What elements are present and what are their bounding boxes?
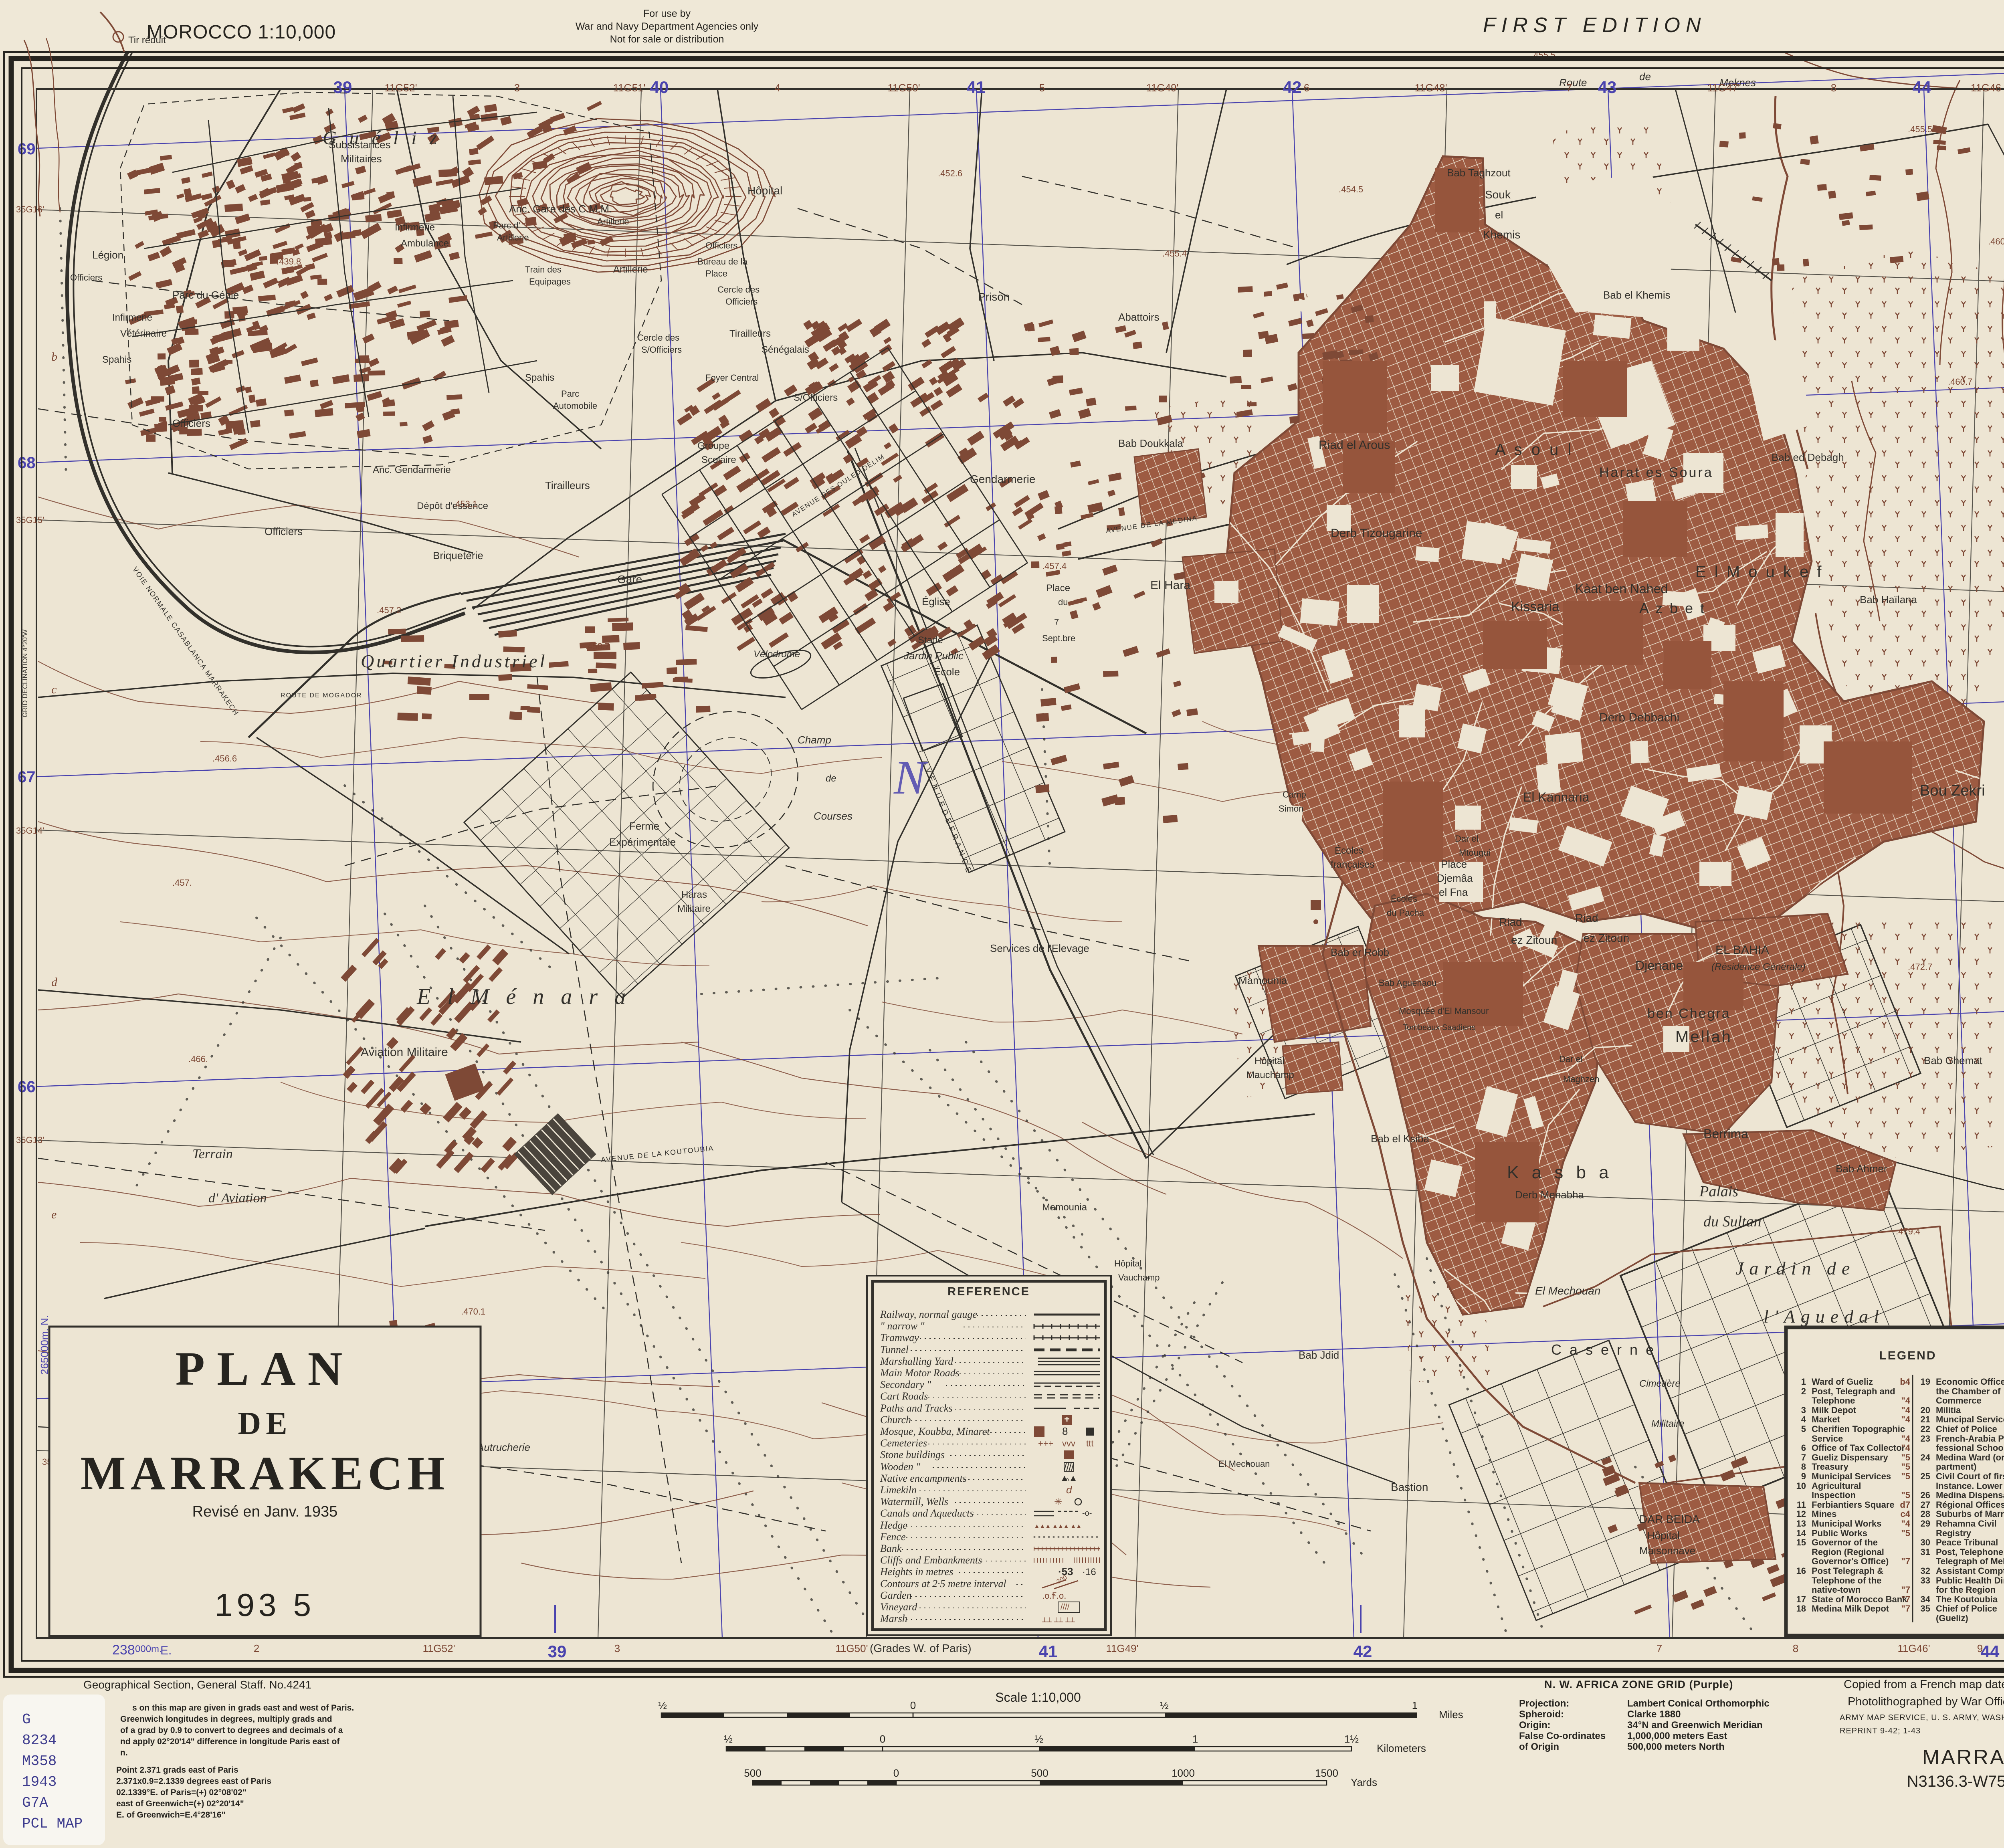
svg-text:Public Works: Public Works bbox=[1812, 1528, 1867, 1538]
svg-text:11G49': 11G49' bbox=[1106, 1642, 1138, 1654]
svg-text:Militaire: Militaire bbox=[1651, 1418, 1685, 1429]
svg-text:El Mechouan: El Mechouan bbox=[1218, 1459, 1270, 1469]
svg-text:Parc du Génie: Parc du Génie bbox=[172, 289, 239, 301]
svg-text:18: 18 bbox=[1796, 1604, 1806, 1614]
svg-text:⟂⟂ ⟂⟂ ⟂⟂: ⟂⟂ ⟂⟂ ⟂⟂ bbox=[1042, 1616, 1075, 1624]
svg-text:35: 35 bbox=[1921, 1604, 1930, 1614]
svg-text:11G50': 11G50' bbox=[835, 1642, 868, 1654]
svg-text:Tunnel: Tunnel bbox=[880, 1344, 909, 1355]
svg-text:Fence: Fence bbox=[880, 1531, 906, 1543]
svg-text:Marsh: Marsh bbox=[880, 1613, 907, 1624]
svg-text:.439.8: .439.8 bbox=[277, 256, 301, 267]
svg-text:EL BAHIA: EL BAHIA bbox=[1715, 943, 1769, 957]
svg-text:vvv: vvv bbox=[1062, 1438, 1075, 1448]
svg-text:24: 24 bbox=[1921, 1452, 1931, 1462]
svg-text:Bab Ahmer: Bab Ahmer bbox=[1836, 1163, 1887, 1175]
svg-text:Office of Tax Collector: Office of Tax Collector bbox=[1812, 1443, 1905, 1453]
svg-text:M358: M358 bbox=[22, 1753, 57, 1769]
svg-text:Bab Jdid: Bab Jdid bbox=[1299, 1349, 1339, 1361]
svg-text:Cherifien Topographic: Cherifien Topographic bbox=[1812, 1424, 1905, 1434]
svg-text:"4: "4 bbox=[1901, 1443, 1910, 1453]
svg-text:Officiers: Officiers bbox=[705, 240, 737, 250]
svg-text:Mamounia: Mamounia bbox=[1238, 974, 1287, 986]
svg-text:Haras: Haras bbox=[681, 889, 707, 900]
svg-text:ez Zitoun: ez Zitoun bbox=[1511, 934, 1557, 946]
svg-text:A s o u l: A s o u l bbox=[1495, 441, 1574, 458]
svg-text:✳: ✳ bbox=[1054, 1497, 1062, 1507]
svg-text:Bank: Bank bbox=[880, 1543, 902, 1554]
svg-text:-o-: -o- bbox=[1082, 1509, 1092, 1518]
svg-text:Anc. Gare des C.M.M.: Anc. Gare des C.M.M. bbox=[509, 203, 612, 215]
svg-text:.453.1: .453.1 bbox=[453, 499, 477, 509]
svg-text:du: du bbox=[1058, 597, 1068, 607]
svg-text:Registry: Registry bbox=[1936, 1528, 1972, 1538]
svg-text:Mauchamp: Mauchamp bbox=[1246, 1070, 1294, 1081]
svg-text:Chief of Police: Chief of Police bbox=[1936, 1604, 1997, 1614]
svg-text:1000: 1000 bbox=[1172, 1767, 1195, 1779]
svg-text:44: 44 bbox=[1981, 1642, 2000, 1661]
svg-text:Governor's Office): Governor's Office) bbox=[1812, 1556, 1889, 1566]
svg-text:east of Greenwich=(+) 02°20'14: east of Greenwich=(+) 02°20'14" bbox=[116, 1799, 244, 1808]
svg-text:Spahis: Spahis bbox=[102, 354, 131, 365]
svg-text:Militaires: Militaires bbox=[341, 153, 382, 165]
svg-text:1: 1 bbox=[1192, 1733, 1198, 1745]
svg-text:DE: DE bbox=[238, 1406, 292, 1441]
svg-text:Khemis: Khemis bbox=[1483, 228, 1520, 241]
svg-text:8: 8 bbox=[1793, 1642, 1798, 1654]
svg-text:Chief of Police: Chief of Police bbox=[1936, 1424, 1997, 1434]
svg-text:Greenwich longitudes in degree: Greenwich longitudes in degrees, multipl… bbox=[120, 1715, 332, 1724]
svg-text:41: 41 bbox=[967, 78, 986, 97]
svg-text:For use by: For use by bbox=[643, 8, 691, 19]
svg-text:.470.1: .470.1 bbox=[461, 1307, 485, 1317]
svg-text:34°N and Greenwich Meridian: 34°N and Greenwich Meridian bbox=[1627, 1720, 1763, 1731]
svg-text:19: 19 bbox=[1921, 1377, 1930, 1387]
svg-text:Bab Haïlana: Bab Haïlana bbox=[1860, 594, 1917, 606]
svg-text:Canals and Aqueducts: Canals and Aqueducts bbox=[880, 1507, 974, 1519]
svg-text:238: 238 bbox=[112, 1642, 135, 1658]
svg-text:PLAN: PLAN bbox=[176, 1342, 355, 1395]
svg-text:11G51': 11G51' bbox=[613, 82, 645, 94]
svg-text:66: 66 bbox=[18, 1078, 36, 1096]
svg-text:34: 34 bbox=[1921, 1594, 1931, 1604]
svg-text:35G15': 35G15' bbox=[16, 515, 44, 525]
svg-text:Ferme: Ferme bbox=[629, 820, 659, 832]
svg-text:REPRINT 9-42; 1-43: REPRINT 9-42; 1-43 bbox=[1840, 1727, 1921, 1735]
svg-text:"5: "5 bbox=[1901, 1462, 1910, 1472]
svg-text:0: 0 bbox=[880, 1733, 885, 1745]
svg-text:35G14': 35G14' bbox=[16, 826, 44, 836]
svg-text:17: 17 bbox=[1796, 1594, 1806, 1604]
svg-text:Bab Aguenaou: Bab Aguenaou bbox=[1379, 978, 1436, 988]
svg-text:S/Officiers: S/Officiers bbox=[794, 392, 838, 403]
svg-text:20: 20 bbox=[1921, 1405, 1930, 1415]
svg-text:Stone buildings: Stone buildings bbox=[880, 1449, 945, 1460]
svg-text:.466.: .466. bbox=[188, 1054, 208, 1064]
svg-text:Écoles: Écoles bbox=[1391, 894, 1417, 904]
svg-text:"4: "4 bbox=[1901, 1396, 1910, 1406]
svg-text:.457.: .457. bbox=[172, 878, 192, 888]
svg-text:ben Chegra: ben Chegra bbox=[1647, 1006, 1731, 1021]
svg-text:6: 6 bbox=[1801, 1443, 1806, 1453]
svg-text:½: ½ bbox=[1160, 1699, 1169, 1711]
svg-text:E. of Greenwich=E.4°28'16": E. of Greenwich=E.4°28'16" bbox=[116, 1810, 226, 1820]
svg-text:d' Aviation: d' Aviation bbox=[208, 1191, 267, 1206]
svg-text:Bab el Ksiba: Bab el Ksiba bbox=[1371, 1133, 1430, 1145]
svg-text:Kàat ben Nahed: Kàat ben Nahed bbox=[1575, 582, 1668, 596]
svg-text:2: 2 bbox=[1801, 1386, 1806, 1396]
svg-text:l'Aguedal: l'Aguedal bbox=[1764, 1306, 1885, 1327]
svg-text:of a grad by 0.9 to convert to: of a grad by 0.9 to convert to degrees a… bbox=[120, 1726, 343, 1735]
svg-text:Jardin de: Jardin de bbox=[1735, 1258, 1855, 1278]
svg-text:MARRAKECH: MARRAKECH bbox=[1922, 1746, 2004, 1769]
svg-text:7: 7 bbox=[1657, 1642, 1662, 1654]
svg-text:Derb Debbachi: Derb Debbachi bbox=[1599, 711, 1679, 724]
svg-text:Tirailleurs: Tirailleurs bbox=[729, 328, 771, 339]
svg-text:.458.7: .458.7 bbox=[585, 641, 610, 651]
svg-text:.454.5: .454.5 bbox=[1339, 184, 1363, 194]
svg-text:4: 4 bbox=[1801, 1414, 1806, 1424]
svg-text:40: 40 bbox=[650, 78, 669, 97]
svg-text:500: 500 bbox=[744, 1767, 761, 1779]
svg-text:Gueliz Dispensary: Gueliz Dispensary bbox=[1812, 1452, 1889, 1462]
svg-text:500: 500 bbox=[1031, 1767, 1048, 1779]
svg-text:02.1339°E. of Paris=(+) 02°08': 02.1339°E. of Paris=(+) 02°08'02" bbox=[116, 1788, 246, 1797]
svg-text:Terrain: Terrain bbox=[192, 1147, 233, 1161]
svg-text:Bureau de la: Bureau de la bbox=[697, 256, 748, 267]
svg-text:Municipal Services: Municipal Services bbox=[1812, 1471, 1891, 1481]
svg-text:.457.4: .457.4 bbox=[1042, 561, 1067, 571]
svg-text:Point 2.371 grads east of Pari: Point 2.371 grads east of Paris bbox=[116, 1765, 238, 1775]
svg-text:the Chamber of: the Chamber of bbox=[1936, 1386, 2001, 1396]
svg-text:"4: "4 bbox=[1901, 1405, 1910, 1415]
svg-text:Abattoirs: Abattoirs bbox=[1118, 311, 1160, 323]
svg-text:Route: Route bbox=[1559, 77, 1587, 89]
svg-text:Muncipal Services: Muncipal Services bbox=[1936, 1414, 2004, 1424]
svg-text:35G13': 35G13' bbox=[16, 1135, 44, 1145]
svg-text:1,000,000 meters East: 1,000,000 meters East bbox=[1627, 1731, 1727, 1741]
svg-text:Berrima: Berrima bbox=[1703, 1127, 1748, 1141]
svg-text:44: 44 bbox=[1913, 78, 1931, 97]
svg-text:Cart Roads: Cart Roads bbox=[880, 1390, 928, 1402]
svg-text:Watermill, Wells: Watermill, Wells bbox=[880, 1496, 948, 1507]
svg-text:Medina Dispensary: Medina Dispensary bbox=[1936, 1490, 2004, 1500]
svg-text:G7A: G7A bbox=[22, 1795, 48, 1811]
svg-text:S/Officiers: S/Officiers bbox=[641, 345, 682, 355]
svg-text:½: ½ bbox=[658, 1699, 667, 1711]
svg-text:Telephone: Telephone bbox=[1812, 1396, 1855, 1406]
svg-text:A z b e t: A z b e t bbox=[1639, 600, 1706, 616]
svg-text:Prison: Prison bbox=[978, 291, 1010, 303]
svg-text:"5: "5 bbox=[1901, 1452, 1910, 1462]
svg-text:000m.: 000m. bbox=[135, 1644, 162, 1654]
svg-text:Dar el: Dar el bbox=[1559, 1054, 1583, 1064]
svg-text:3: 3 bbox=[614, 1642, 620, 1654]
svg-text:False Co-ordinates: False Co-ordinates bbox=[1519, 1731, 1606, 1741]
svg-text:Hôpital: Hôpital bbox=[1255, 1056, 1285, 1066]
svg-text:(Grades W. of Paris): (Grades W. of Paris) bbox=[870, 1642, 972, 1654]
svg-text:E.: E. bbox=[160, 1644, 172, 1657]
svg-text:7: 7 bbox=[1566, 82, 1572, 94]
svg-text:E l M é n a r a: E l M é n a r a bbox=[416, 984, 631, 1009]
svg-text:Geographical Section, General: Geographical Section, General Staff. No.… bbox=[83, 1678, 311, 1691]
svg-text:Ward of Gueliz: Ward of Gueliz bbox=[1812, 1377, 1873, 1387]
svg-text:Cercle des: Cercle des bbox=[717, 285, 760, 295]
svg-text:Paths and Tracks: Paths and Tracks bbox=[880, 1402, 953, 1414]
svg-text:Place: Place bbox=[705, 269, 727, 279]
svg-text:"7: "7 bbox=[1901, 1585, 1910, 1595]
svg-text:Wooden ": Wooden " bbox=[880, 1461, 920, 1472]
svg-text:Tirailleurs: Tirailleurs bbox=[545, 479, 590, 491]
svg-text:Groupe: Groupe bbox=[697, 440, 729, 451]
svg-text:25: 25 bbox=[1921, 1471, 1930, 1481]
svg-text:"5: "5 bbox=[1901, 1471, 1910, 1481]
svg-text:REFERENCE: REFERENCE bbox=[947, 1285, 1030, 1298]
svg-text:de: de bbox=[826, 773, 836, 784]
svg-text:Railway, normal gauge: Railway, normal gauge bbox=[880, 1309, 977, 1320]
svg-text:Bab er Robb: Bab er Robb bbox=[1331, 946, 1389, 958]
svg-text:Not for sale or distribution: Not for sale or distribution bbox=[610, 34, 724, 45]
svg-text:Officiers: Officiers bbox=[172, 417, 210, 429]
svg-text:Sénégalais: Sénégalais bbox=[762, 344, 809, 355]
svg-text:Hôpital: Hôpital bbox=[747, 184, 782, 197]
svg-text:32: 32 bbox=[1921, 1566, 1930, 1576]
svg-text:Artillerie: Artillerie bbox=[597, 216, 629, 226]
svg-text:33: 33 bbox=[1921, 1575, 1930, 1585]
svg-text:Medina Ward (or de-: Medina Ward (or de- bbox=[1936, 1452, 2004, 1462]
svg-text:5: 5 bbox=[1801, 1424, 1806, 1434]
svg-text:d: d bbox=[51, 976, 58, 989]
svg-text:Officiers: Officiers bbox=[725, 297, 758, 307]
svg-text:nd apply 02°20'14" difference: nd apply 02°20'14" difference in longitu… bbox=[120, 1737, 340, 1746]
svg-text:Djemâa: Djemâa bbox=[1437, 872, 1473, 884]
svg-text:ARMY MAP SERVICE, U. S. ARMY,: ARMY MAP SERVICE, U. S. ARMY, WASHINGTON… bbox=[1840, 1713, 2004, 1722]
svg-text:Commerce: Commerce bbox=[1936, 1396, 1982, 1406]
svg-text:Instance. Lower Court: Instance. Lower Court bbox=[1936, 1481, 2004, 1491]
svg-text:28: 28 bbox=[1921, 1509, 1930, 1519]
svg-text:½: ½ bbox=[1034, 1733, 1043, 1745]
svg-text:.457.2: .457.2 bbox=[377, 605, 401, 615]
svg-text:41: 41 bbox=[1039, 1642, 1058, 1661]
svg-text:.460.0: .460.0 bbox=[1988, 236, 2004, 246]
svg-text:Peace Tribunal: Peace Tribunal bbox=[1936, 1537, 1998, 1547]
svg-text:partment): partment) bbox=[1936, 1462, 1976, 1472]
svg-text:Vineyard: Vineyard bbox=[880, 1601, 917, 1613]
svg-text:Copied from a French map dated: Copied from a French map dated 1935 bbox=[1844, 1678, 2004, 1691]
svg-text:16: 16 bbox=[1796, 1566, 1806, 1576]
svg-text:s on this map are given in gra: s on this map are given in grads east an… bbox=[132, 1703, 354, 1713]
svg-text:Church: Church bbox=[880, 1414, 911, 1426]
svg-text:Infirmerie: Infirmerie bbox=[112, 312, 152, 323]
svg-text:Riad: Riad bbox=[1499, 916, 1522, 928]
svg-text:Ambulance: Ambulance bbox=[401, 238, 449, 249]
svg-text:Aviation Militaire: Aviation Militaire bbox=[361, 1046, 448, 1059]
svg-text:n.: n. bbox=[120, 1748, 128, 1757]
svg-text:11G49': 11G49' bbox=[1146, 82, 1178, 94]
svg-text:////: //// bbox=[1061, 1603, 1070, 1612]
svg-text:N3136.3-W758.4/2.7x4.0: N3136.3-W758.4/2.7x4.0 bbox=[1907, 1773, 2004, 1790]
svg-text:Heights in metres: Heights in metres bbox=[880, 1566, 953, 1577]
svg-text:"7: "7 bbox=[1901, 1604, 1910, 1614]
svg-text:8: 8 bbox=[1801, 1462, 1806, 1472]
svg-text:Service: Service bbox=[1812, 1434, 1843, 1444]
svg-text:françaises: françaises bbox=[1331, 859, 1374, 870]
svg-text:"7: "7 bbox=[1901, 1594, 1910, 1604]
svg-text:Infirmerie: Infirmerie bbox=[395, 222, 435, 233]
svg-text:Economic Office of: Economic Office of bbox=[1936, 1377, 2004, 1387]
svg-text:Autrucherie: Autrucherie bbox=[476, 1441, 530, 1453]
svg-text:Briqueterie: Briqueterie bbox=[433, 549, 483, 561]
svg-text:½: ½ bbox=[724, 1733, 733, 1745]
svg-text:Foyer Central: Foyer Central bbox=[705, 373, 759, 383]
svg-text:Equipages: Equipages bbox=[529, 277, 571, 287]
svg-text:State of Morocco Bank: State of Morocco Bank bbox=[1812, 1594, 1907, 1604]
svg-text:Harat es Soura: Harat es Soura bbox=[1599, 465, 1713, 480]
svg-text:Hôpital: Hôpital bbox=[1647, 1529, 1680, 1541]
svg-text:Maghzen: Maghzen bbox=[1563, 1074, 1600, 1084]
svg-text:Public Health Director: Public Health Director bbox=[1936, 1575, 2004, 1585]
svg-text:G: G bbox=[22, 1711, 31, 1728]
svg-text:Bastion: Bastion bbox=[1391, 1481, 1428, 1493]
svg-text:du Sultan: du Sultan bbox=[1703, 1213, 1762, 1230]
svg-text:c: c bbox=[51, 683, 57, 696]
svg-text:Governor of the: Governor of the bbox=[1812, 1537, 1878, 1547]
svg-text:Medina Milk Depot: Medina Milk Depot bbox=[1812, 1604, 1889, 1614]
svg-text:.455.4: .455.4 bbox=[1162, 248, 1187, 259]
svg-text:.456.6: .456.6 bbox=[212, 753, 237, 763]
svg-text:Maisonnave: Maisonnave bbox=[1639, 1545, 1695, 1557]
svg-text:PCL MAP: PCL MAP bbox=[22, 1816, 83, 1832]
svg-text:Projection:: Projection: bbox=[1519, 1698, 1569, 1709]
svg-text:7: 7 bbox=[1801, 1452, 1806, 1462]
svg-text:Mosque, Koubba, Minaret: Mosque, Koubba, Minaret bbox=[880, 1426, 990, 1437]
svg-text:Vélodrome: Vélodrome bbox=[754, 649, 800, 660]
svg-text:+++: +++ bbox=[1038, 1438, 1054, 1448]
svg-text:Clarke 1880: Clarke 1880 bbox=[1627, 1709, 1681, 1720]
svg-text:War and Navy Department Agenci: War and Navy Department Agencies only bbox=[576, 21, 759, 32]
svg-text:39: 39 bbox=[548, 1642, 567, 1661]
svg-text:11: 11 bbox=[1797, 1500, 1806, 1510]
svg-text:N: N bbox=[893, 751, 928, 804]
svg-text:Vétérinaire: Vétérinaire bbox=[120, 328, 167, 339]
svg-text:Miles: Miles bbox=[1439, 1709, 1463, 1721]
svg-text:Dar el: Dar el bbox=[1455, 834, 1479, 844]
svg-text:el: el bbox=[1495, 209, 1503, 221]
svg-text:Revisé en Janv. 1935: Revisé en Janv. 1935 bbox=[192, 1503, 338, 1520]
svg-text:Market: Market bbox=[1812, 1414, 1840, 1424]
svg-text:(Gueliz): (Gueliz) bbox=[1936, 1613, 1968, 1623]
svg-text:Artillerie: Artillerie bbox=[613, 264, 648, 275]
svg-text:43: 43 bbox=[1598, 78, 1617, 97]
svg-text:c4: c4 bbox=[1901, 1509, 1911, 1519]
svg-text:10: 10 bbox=[1796, 1481, 1806, 1491]
svg-text:Derb Menabha: Derb Menabha bbox=[1515, 1189, 1584, 1201]
svg-text:Spheroid:: Spheroid: bbox=[1519, 1709, 1564, 1720]
svg-text:d: d bbox=[1066, 1484, 1073, 1496]
svg-text:Post, Telephone and: Post, Telephone and bbox=[1936, 1547, 2004, 1557]
svg-text:Main Motor Roads: Main Motor Roads bbox=[880, 1367, 960, 1379]
svg-text:Rehamna Civil: Rehamna Civil bbox=[1936, 1519, 1997, 1529]
svg-text:Régional Offices: Régional Offices bbox=[1936, 1500, 2004, 1510]
svg-text:d7: d7 bbox=[1900, 1500, 1910, 1510]
svg-text:Milk Depot: Milk Depot bbox=[1812, 1405, 1857, 1415]
svg-text:3: 3 bbox=[514, 82, 520, 94]
svg-text:du Pacha: du Pacha bbox=[1387, 908, 1424, 918]
svg-text:for the Region: for the Region bbox=[1936, 1585, 1996, 1595]
svg-text:6: 6 bbox=[1304, 82, 1309, 94]
svg-text:8: 8 bbox=[1831, 82, 1836, 94]
svg-text:13: 13 bbox=[1796, 1519, 1806, 1529]
svg-text:27: 27 bbox=[1921, 1500, 1930, 1510]
svg-text:11G47': 11G47' bbox=[1707, 82, 1739, 94]
svg-text:Courses: Courses bbox=[814, 810, 853, 822]
svg-text:École: École bbox=[934, 666, 960, 678]
svg-text:.455.5: .455.5 bbox=[1908, 124, 1932, 134]
svg-text:El Hara: El Hara bbox=[1150, 579, 1190, 592]
svg-text:(Résidence Générale): (Résidence Générale) bbox=[1711, 961, 1806, 972]
svg-text:Jardin Public: Jardin Public bbox=[903, 650, 964, 662]
svg-text:Telegraph of Mellah: Telegraph of Mellah bbox=[1936, 1556, 2004, 1566]
svg-text:8234: 8234 bbox=[22, 1732, 57, 1749]
svg-text:fessional School: fessional School bbox=[1936, 1443, 2004, 1453]
svg-text:El Kannaria: El Kannaria bbox=[1523, 790, 1590, 804]
svg-text:21: 21 bbox=[1921, 1414, 1930, 1424]
svg-text:14: 14 bbox=[1796, 1528, 1806, 1538]
svg-text:Post, Telegraph and: Post, Telegraph and bbox=[1812, 1386, 1895, 1396]
svg-text:Mines: Mines bbox=[1812, 1509, 1836, 1519]
svg-text:11G52': 11G52' bbox=[422, 1642, 455, 1654]
svg-text:3: 3 bbox=[1801, 1405, 1806, 1415]
svg-text:K a s b a: K a s b a bbox=[1507, 1163, 1613, 1182]
svg-text:42: 42 bbox=[1354, 1642, 1372, 1661]
svg-text:Scolaire: Scolaire bbox=[701, 454, 736, 465]
svg-text:69: 69 bbox=[18, 140, 36, 158]
svg-text:11G46: 11G46 bbox=[1971, 82, 2001, 94]
svg-text:b: b bbox=[51, 350, 57, 364]
svg-text:Yards: Yards bbox=[1351, 1776, 1377, 1788]
svg-text:26: 26 bbox=[1921, 1490, 1930, 1500]
svg-text:"5: "5 bbox=[1901, 1528, 1910, 1538]
svg-text:11G46': 11G46' bbox=[1897, 1642, 1930, 1654]
svg-text:9: 9 bbox=[1977, 1642, 1983, 1654]
svg-text:Mtougui: Mtougui bbox=[1459, 848, 1490, 858]
svg-text:Militaire: Militaire bbox=[677, 903, 711, 914]
svg-text:0: 0 bbox=[893, 1767, 899, 1779]
svg-text:Cemeteries: Cemeteries bbox=[880, 1437, 927, 1449]
svg-text:Scale 1:10,000: Scale 1:10,000 bbox=[995, 1690, 1081, 1705]
svg-text:E l M o u k e f: E l M o u k e f bbox=[1695, 563, 1824, 581]
svg-text:▲▲▲ ▲▲▲ ▲▲: ▲▲▲ ▲▲▲ ▲▲ bbox=[1034, 1523, 1082, 1529]
svg-text:El Mechouan: El Mechouan bbox=[1535, 1285, 1600, 1297]
svg-text:Stade: Stade bbox=[918, 635, 943, 646]
svg-text:500,000 meters North: 500,000 meters North bbox=[1627, 1741, 1725, 1752]
svg-text:Gare: Gare bbox=[617, 573, 642, 586]
svg-text:Expérimentale: Expérimentale bbox=[609, 836, 676, 848]
svg-text:Marshalling Yard: Marshalling Yard bbox=[880, 1355, 954, 1367]
svg-text:Simon: Simon bbox=[1279, 804, 1303, 814]
svg-text:LEGEND: LEGEND bbox=[1879, 1349, 1936, 1362]
svg-text:31: 31 bbox=[1921, 1547, 1930, 1557]
svg-text:FIRST EDITION: FIRST EDITION bbox=[1483, 14, 1707, 37]
svg-text:Riad el Arous: Riad el Arous bbox=[1319, 438, 1390, 452]
svg-text:Bab Ghemat: Bab Ghemat bbox=[1924, 1054, 1983, 1066]
svg-text:Sept.bre: Sept.bre bbox=[1042, 633, 1075, 643]
svg-text:4: 4 bbox=[775, 82, 780, 94]
svg-text:Derb Tizougarine: Derb Tizougarine bbox=[1331, 527, 1422, 540]
svg-text:23: 23 bbox=[1921, 1434, 1930, 1444]
svg-text:1½: 1½ bbox=[1344, 1733, 1359, 1745]
svg-text:Hôpital: Hôpital bbox=[1114, 1258, 1141, 1268]
